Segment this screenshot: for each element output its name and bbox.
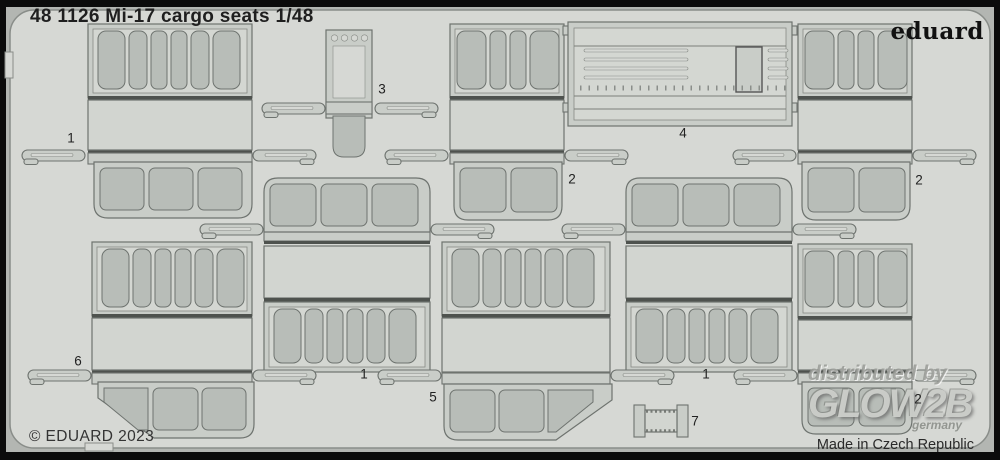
fret-sheet-drawing (0, 0, 1000, 460)
copyright-text: © EDUARD 2023 (29, 428, 154, 446)
part-number-label-2-top-right: 2 (915, 173, 923, 188)
part-number-label-4: 4 (679, 126, 687, 141)
photoetch-fret-product-scan: 48 1126 Mi-17 cargo seats 1/48 eduard © … (0, 0, 1000, 460)
made-in-text: Made in Czech Republic (817, 437, 974, 453)
product-title: 48 1126 Mi-17 cargo seats 1/48 (30, 6, 314, 28)
part-number-label-1-middle-center: 1 (360, 367, 368, 382)
part-number-label-3: 3 (378, 82, 386, 97)
part-number-label-6: 6 (74, 354, 82, 369)
part-4-floor-plate (563, 22, 797, 126)
sheet-tab-left (5, 52, 13, 78)
part-number-label-7: 7 (691, 414, 699, 429)
part-number-label-1-top-left: 1 (67, 131, 75, 146)
eduard-logo: eduard (890, 18, 984, 45)
part-number-label-2-bottom-right: 2 (914, 392, 922, 407)
part-7-latch-plate (634, 405, 688, 437)
part-number-label-5: 5 (429, 390, 437, 405)
part-number-label-2-top-center: 2 (568, 172, 576, 187)
part-number-label-1-middle-right: 1 (702, 367, 710, 382)
